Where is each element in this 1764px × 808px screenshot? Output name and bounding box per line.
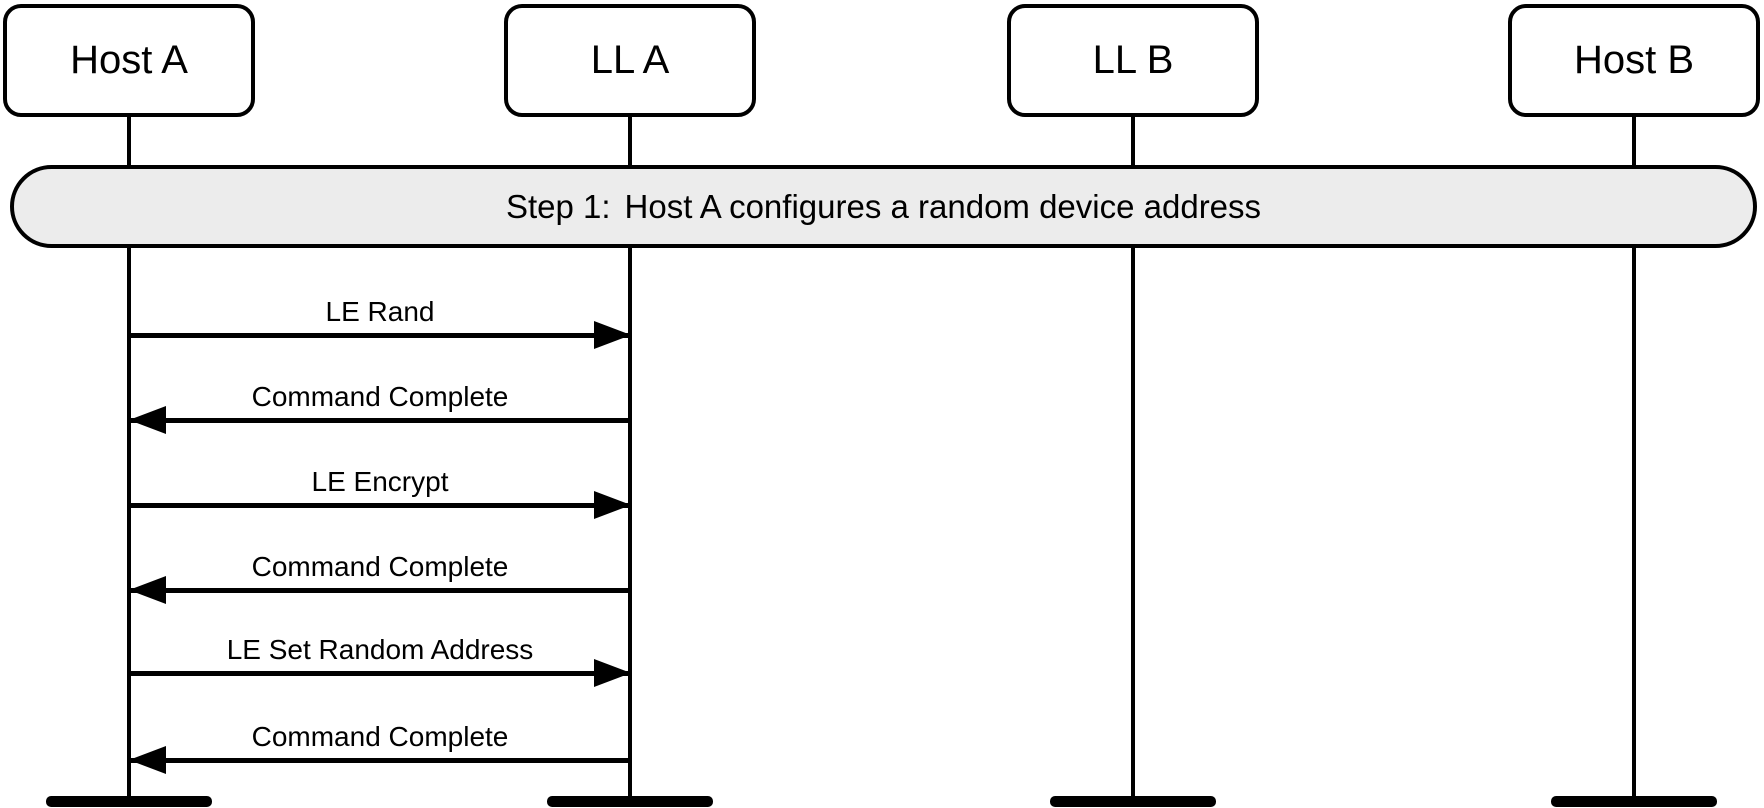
lifeline-end-bar-ll-a	[547, 796, 713, 807]
participant-box-ll-a: LL A	[504, 4, 756, 117]
sequence-diagram: Host A LL A LL B Host B Step 1: Host A c…	[0, 0, 1764, 808]
message-arrow-line	[130, 503, 630, 508]
participant-label: Host B	[1574, 38, 1694, 83]
participant-box-host-a: Host A	[3, 4, 255, 117]
lifeline-end-bar-host-b	[1551, 796, 1717, 807]
message-label: LE Set Random Address	[130, 634, 630, 666]
message-arrow-line	[130, 333, 630, 338]
arrowhead-right-icon	[594, 659, 631, 687]
message-label: Command Complete	[130, 551, 630, 583]
message-arrow-line	[130, 758, 630, 763]
participant-box-ll-b: LL B	[1007, 4, 1259, 117]
message-label: Command Complete	[130, 381, 630, 413]
participant-box-host-b: Host B	[1508, 4, 1760, 117]
message-label: Command Complete	[130, 721, 630, 753]
message-arrow-line	[130, 671, 630, 676]
lifeline-end-bar-host-a	[46, 796, 212, 807]
step-banner-text: Host A configures a random device addres…	[625, 188, 1262, 226]
arrowhead-right-icon	[594, 491, 631, 519]
message-arrow-line	[130, 418, 630, 423]
participant-label: LL A	[591, 38, 670, 83]
message-arrow-line	[130, 588, 630, 593]
step-banner-prefix: Step 1:	[506, 188, 611, 226]
arrowhead-left-icon	[129, 576, 166, 604]
lifeline-end-bar-ll-b	[1050, 796, 1216, 807]
arrowhead-left-icon	[129, 746, 166, 774]
arrowhead-left-icon	[129, 406, 166, 434]
participant-label: LL B	[1093, 38, 1174, 83]
arrowhead-right-icon	[594, 321, 631, 349]
message-label: LE Encrypt	[130, 466, 630, 498]
participant-label: Host A	[70, 38, 188, 83]
step-banner: Step 1: Host A configures a random devic…	[10, 165, 1757, 248]
message-label: LE Rand	[130, 296, 630, 328]
